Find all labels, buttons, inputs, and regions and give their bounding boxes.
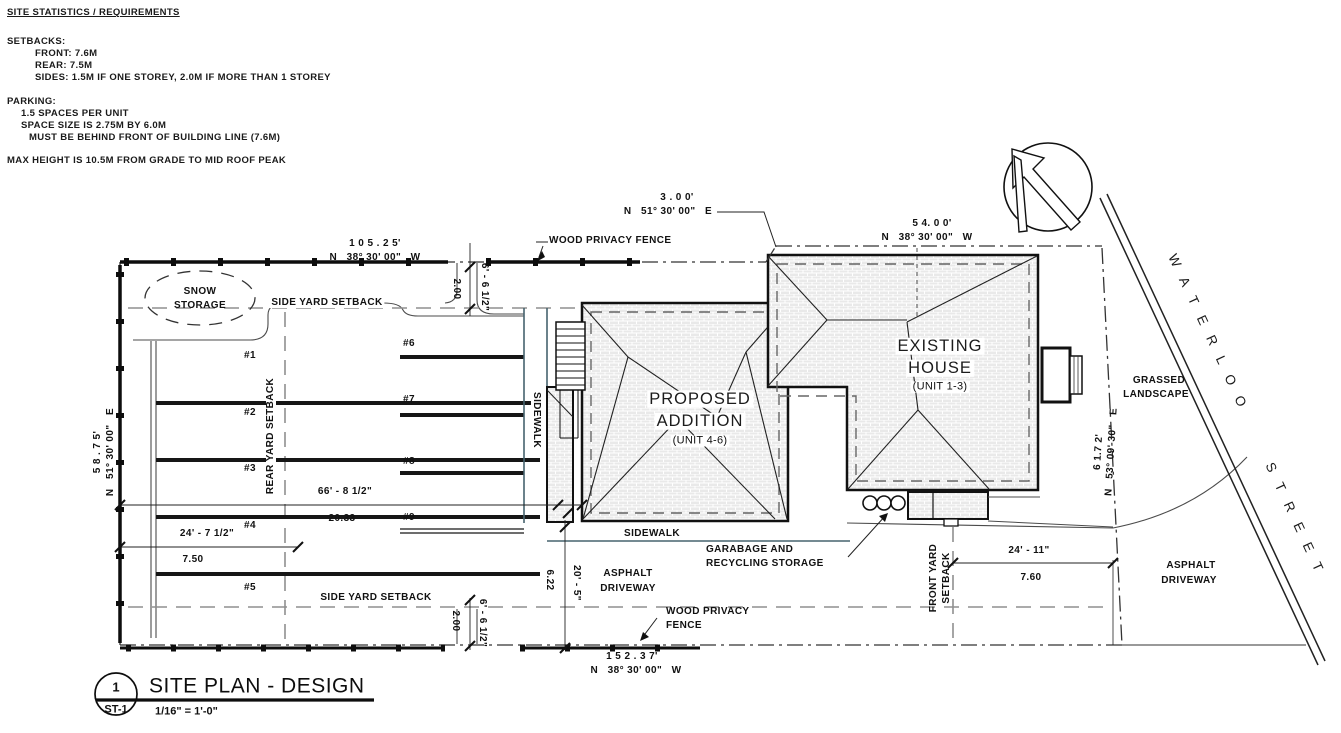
proposed-addition-label-2: ADDITION (655, 413, 746, 430)
setbacks-heading: SETBACKS: (7, 37, 66, 48)
side-yard-setback-bottom-label: SIDE YARD SETBACK (318, 593, 433, 603)
dim-jog-ft: 3 . 0 0' (660, 193, 693, 203)
parking-heading: PARKING: (7, 97, 56, 108)
wood-fence-bottom-label-1: WOOD PRIVACY (666, 607, 750, 617)
sidewalk-vertical-label: SIDEWALK (531, 390, 541, 450)
dim-bottom-gap-ft: 6' - 6 1/2" (477, 599, 487, 647)
garbage-storage-label-2: RECYCLING STORAGE (706, 559, 824, 569)
dim-left-property-bearing: N 51° 30' 00" E (106, 408, 116, 496)
site-plan-page: SITE STATISTICS / REQUIREMENTS SETBACKS:… (0, 0, 1341, 733)
parking-size: SPACE SIZE IS 2.75M BY 6.0M (21, 121, 166, 132)
stall-number: #6 (403, 339, 415, 349)
sidewalk-horizontal-label: SIDEWALK (624, 529, 680, 539)
bay-window (1042, 348, 1082, 402)
wood-fence-bottom-label-2: FENCE (666, 621, 702, 631)
setback-rear: REAR: 7.5M (35, 61, 92, 72)
snow-storage-label-2: STORAGE (174, 301, 226, 311)
setback-sides: SIDES: 1.5M IF ONE STOREY, 2.0M IF MORE … (35, 73, 331, 84)
stall-number: #1 (244, 351, 256, 361)
north-arrow-icon (1004, 143, 1092, 232)
front-porch (908, 492, 988, 526)
asphalt-driveway-left-label-2: DRIVEWAY (600, 584, 656, 594)
site-statistics-title: SITE STATISTICS / REQUIREMENTS (7, 8, 180, 19)
sheet-number: ST-1 (104, 705, 127, 716)
grassed-landscape-label-2: LANDSCAPE (1123, 390, 1189, 400)
existing-house-unit-label: (UNIT 1-3) (911, 382, 970, 393)
street-lines (1100, 194, 1325, 665)
dim-rear-property-ft: 1 0 5 . 2 5' (349, 239, 401, 249)
asphalt-driveway-right-label-2: DRIVEWAY (1161, 576, 1217, 586)
drawing-scale: 1/16" = 1'-0" (155, 707, 218, 718)
existing-house-label-2: HOUSE (906, 360, 974, 377)
asphalt-driveway-left-label-1: ASPHALT (603, 569, 652, 579)
snow-storage-ellipse (145, 271, 255, 325)
dim-stall-length-m: 7.50 (182, 555, 203, 565)
garbage-bins (863, 496, 905, 510)
dim-lot-depth-m: 20.33 (328, 514, 355, 524)
detail-number: 1 (112, 681, 119, 694)
dim-jog-bearing: N 51° 30' 00" E (624, 207, 712, 217)
wood-fence-top-label: WOOD PRIVACY FENCE (549, 236, 671, 246)
dim-house-property-ft: 5 4. 0 0' (912, 219, 951, 229)
dim-top-gap-m: 2.00 (451, 278, 461, 299)
parking-stalls (156, 357, 540, 574)
stall-number: #2 (244, 408, 256, 418)
stall-number: #8 (403, 457, 415, 467)
snow-storage-label-1: SNOW (184, 287, 217, 297)
setback-front: FRONT: 7.6M (35, 49, 97, 60)
dim-house-property-bearing: N 38° 30' 00" W (882, 233, 973, 243)
side-yard-setback-top-label: SIDE YARD SETBACK (269, 298, 384, 308)
dim-stall-length-ft: 24' - 7 1/2" (180, 529, 234, 539)
existing-house-label-1: EXISTING (895, 338, 984, 355)
front-yard-setback-label-2: SETBACK (942, 552, 952, 603)
grassed-landscape-label-1: GRASSED (1133, 376, 1185, 386)
proposed-addition-unit-label: (UNIT 4-6) (671, 436, 730, 447)
dim-left-property-ft: 5 8 . 7 5' (93, 431, 103, 474)
rear-yard-setback-label: REAR YARD SETBACK (266, 376, 276, 496)
parking-ratio: 1.5 SPACES PER UNIT (21, 109, 129, 120)
dim-bottom-property-ft: 1 5 2 . 3 7' (606, 652, 658, 662)
front-walk (988, 497, 1113, 527)
front-yard-setback-label-1: FRONT YARD (929, 544, 939, 612)
dim-bottom-property-bearing: N 38° 30' 00" W (591, 666, 682, 676)
dim-top-gap-ft: 6' - 6 1/2" (479, 263, 489, 311)
dim-bottom-gap-m: 2.00 (450, 610, 460, 631)
stall-number: #9 (403, 513, 415, 523)
dim-front-driveway-ft: 24' - 11" (1008, 546, 1049, 556)
dim-front-driveway-m: 7.60 (1020, 573, 1041, 583)
drawing-title: SITE PLAN - DESIGN (149, 676, 365, 697)
parking-location: MUST BE BEHIND FRONT OF BUILDING LINE (7… (29, 133, 280, 144)
dim-rear-property-bearing: N 38° 30' 00" W (330, 253, 421, 263)
garbage-storage-label-1: GARABAGE AND (706, 545, 793, 555)
proposed-addition-label-1: PROPOSED (647, 391, 753, 408)
dim-lot-depth-ft: 66' - 8 1/2" (318, 487, 372, 497)
stall-number: #5 (244, 583, 256, 593)
max-height-note: MAX HEIGHT IS 10.5M FROM GRADE TO MID RO… (7, 156, 286, 167)
asphalt-driveway-right-label-1: ASPHALT (1166, 561, 1215, 571)
dim-driveway-m: 6.22 (544, 569, 554, 590)
dim-driveway-ft: 20' - 5" (571, 565, 581, 601)
stall-number: #3 (244, 464, 256, 474)
stall-number: #4 (244, 521, 256, 531)
stall-number: #7 (403, 395, 415, 405)
